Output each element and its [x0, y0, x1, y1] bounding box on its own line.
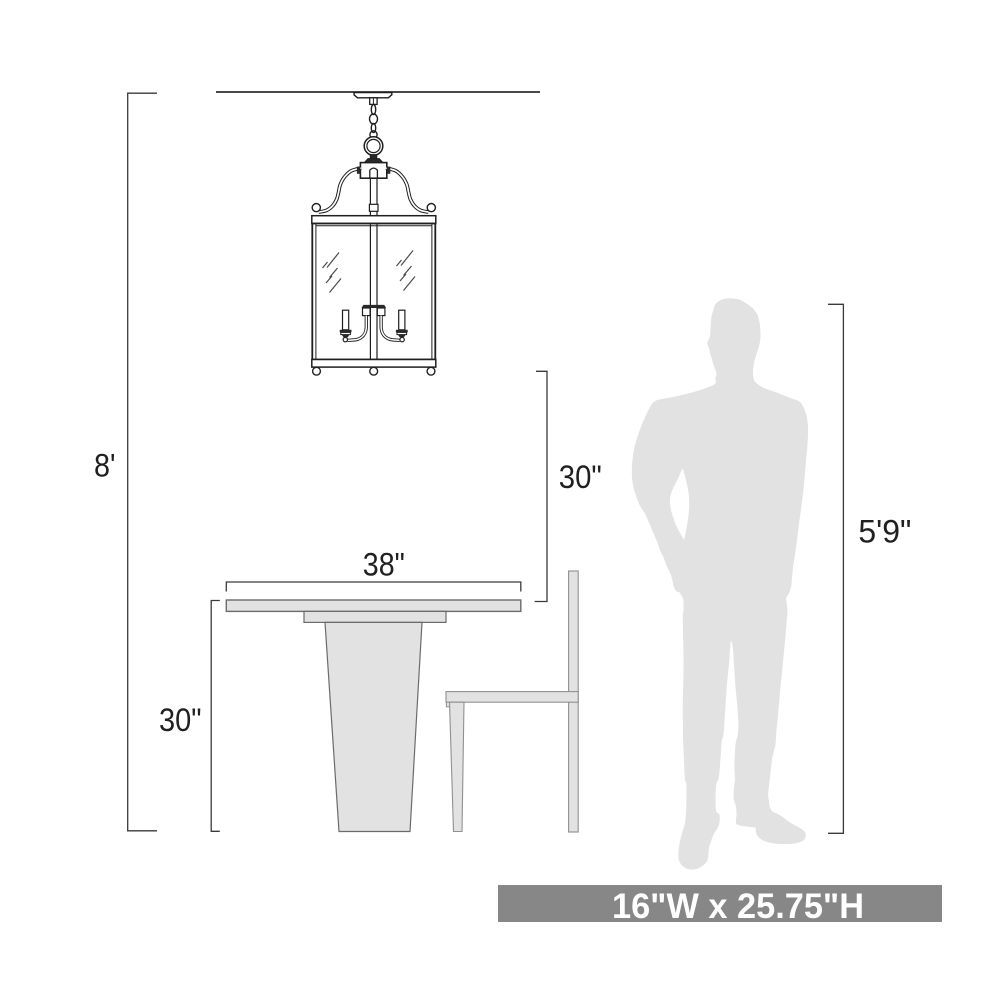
- svg-text:30": 30": [559, 459, 602, 495]
- svg-text:16"W x 25.75"H: 16"W x 25.75"H: [612, 887, 864, 926]
- svg-text:5'9": 5'9": [858, 513, 911, 549]
- svg-text:8': 8': [94, 448, 116, 484]
- svg-text:30": 30": [159, 702, 202, 738]
- svg-text:38": 38": [363, 547, 405, 583]
